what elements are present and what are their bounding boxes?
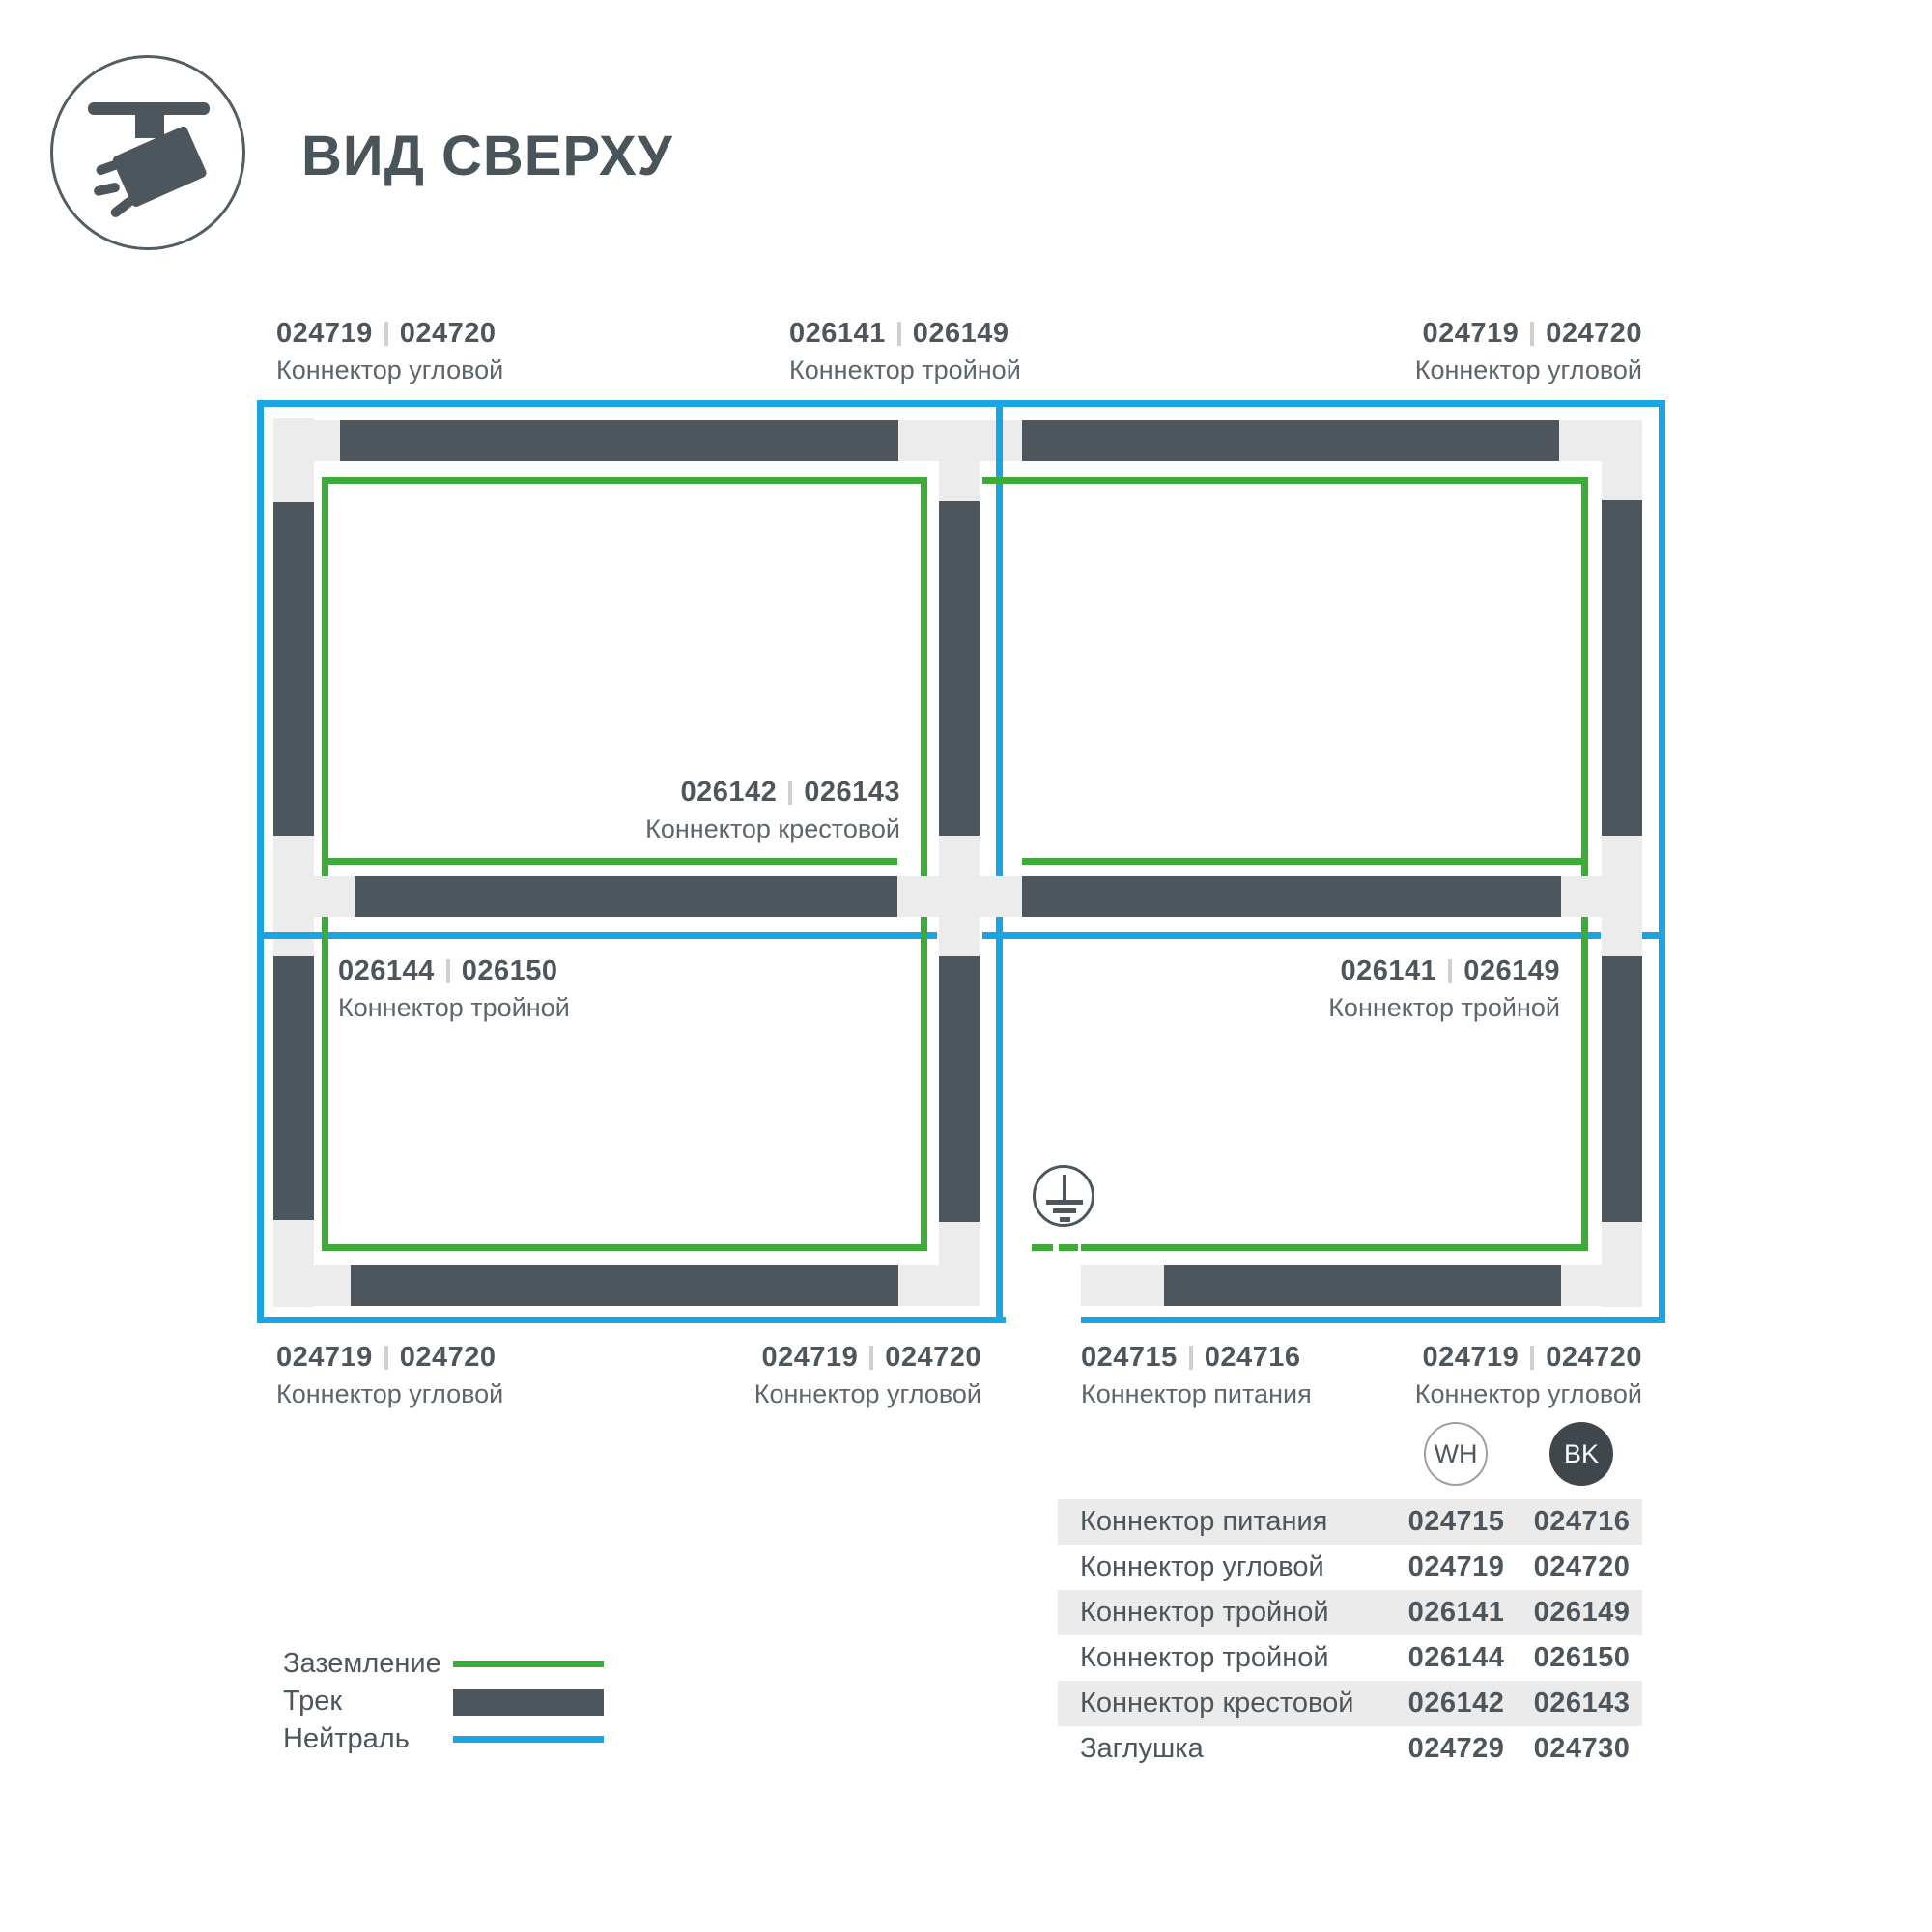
ground-line-middle-horizontal <box>322 858 897 865</box>
ground-dash <box>1059 1244 1078 1251</box>
legend-label: Трек <box>283 1686 453 1718</box>
code-divider <box>788 781 792 805</box>
label-corner-bottom-middle: 024719024720 Коннектор угловой <box>750 1343 981 1407</box>
code-divider <box>384 322 388 346</box>
part-name: Коннектор тройной <box>338 994 570 1021</box>
neutral-line-middle-horizontal <box>1642 932 1665 939</box>
label-cross-center: 026142026143 Коннектор крестовой <box>618 778 900 842</box>
table-row: Коннектор угловой 024719 024720 <box>1058 1545 1642 1590</box>
ground-line-right <box>1581 917 1588 1251</box>
page: ВИД СВЕРХУ 024 <box>0 0 1932 1932</box>
neutral-line-middle-vertical <box>996 400 1003 876</box>
part-name: Коннектор угловой <box>750 1380 981 1407</box>
row-code-wh: 026142 <box>1391 1688 1521 1719</box>
part-code-bk: 024720 <box>400 1343 497 1372</box>
ground-line-middle-horizontal <box>1022 858 1588 865</box>
part-code-bk: 026149 <box>1463 956 1560 985</box>
label-corner-bottom-right: 024719024720 Коннектор угловой <box>1410 1343 1642 1407</box>
part-code-wh: 026144 <box>338 956 435 985</box>
table-row: Коннектор питания 024715 024716 <box>1058 1499 1642 1545</box>
row-code-bk: 026143 <box>1521 1688 1642 1719</box>
part-code-wh: 024719 <box>276 1343 373 1372</box>
track-segment <box>1022 876 1561 917</box>
ground-line-bottom-left <box>322 1244 927 1251</box>
row-name: Заглушка <box>1058 1733 1391 1765</box>
page-title: ВИД СВЕРХУ <box>301 124 673 188</box>
part-name: Коннектор тройной <box>1315 994 1560 1021</box>
code-divider <box>1448 959 1452 983</box>
row-code-bk: 024720 <box>1521 1551 1642 1583</box>
row-code-wh: 024729 <box>1391 1733 1521 1765</box>
neutral-line-right <box>1659 400 1665 1323</box>
part-code-bk: 024720 <box>1546 1343 1642 1372</box>
ground-line-middle <box>921 477 927 876</box>
legend-item-ground: Заземление <box>283 1645 604 1683</box>
ground-line-top <box>982 477 1588 484</box>
track-spotlight-icon-art <box>53 58 242 247</box>
neutral-line-swatch <box>453 1736 604 1743</box>
parts-table: Коннектор питания 024715 024716 Коннекто… <box>1058 1499 1642 1772</box>
part-code-wh: 026142 <box>680 778 777 807</box>
row-code-bk: 024730 <box>1521 1733 1642 1765</box>
track-segment <box>939 956 980 1222</box>
earth-symbol <box>1033 1165 1094 1227</box>
ground-line-right <box>1581 477 1588 876</box>
part-code-bk: 026149 <box>913 319 1009 348</box>
bk-label: BK <box>1564 1439 1599 1469</box>
label-corner-bottom-left: 024719024720 Коннектор угловой <box>276 1343 503 1407</box>
legend: Заземление Трек Нейтраль <box>283 1645 604 1758</box>
ground-dash <box>1032 1244 1053 1251</box>
part-code-bk: 026150 <box>462 956 558 985</box>
part-code-wh: 026141 <box>789 319 886 348</box>
label-corner-top-left: 024719024720 Коннектор угловой <box>276 319 503 384</box>
row-code-wh: 026141 <box>1391 1597 1521 1629</box>
label-tee-middle-left: 026144026150 Коннектор тройной <box>338 956 570 1021</box>
label-tee-middle-right: 026141026149 Коннектор тройной <box>1315 956 1560 1021</box>
part-code-bk: 026143 <box>804 778 900 807</box>
legend-item-track: Трек <box>283 1683 604 1720</box>
ground-line-middle <box>921 917 927 1251</box>
table-row: Коннектор крестовой 026142 026143 <box>1058 1681 1642 1726</box>
neutral-line-left <box>257 400 264 1323</box>
part-code-wh: 024715 <box>1081 1343 1178 1372</box>
track-segment <box>1602 500 1642 836</box>
row-code-bk: 026149 <box>1521 1597 1642 1629</box>
legend-label: Нейтраль <box>283 1723 453 1755</box>
code-divider <box>897 322 901 346</box>
label-tee-top: 026141026149 Коннектор тройной <box>789 319 1021 384</box>
part-code-wh: 024719 <box>761 1343 858 1372</box>
part-name: Коннектор тройной <box>789 356 1021 384</box>
track-spotlight-icon <box>50 55 245 250</box>
legend-item-neutral: Нейтраль <box>283 1720 604 1758</box>
row-name: Коннектор угловой <box>1058 1551 1391 1583</box>
part-code-bk: 024720 <box>1546 319 1642 348</box>
neutral-line-middle-vertical <box>996 917 1003 1323</box>
code-divider <box>1189 1346 1193 1370</box>
part-code-bk: 024716 <box>1205 1343 1301 1372</box>
row-code-wh: 024715 <box>1391 1506 1521 1538</box>
track-segment <box>273 502 314 836</box>
track-bar-swatch <box>453 1689 604 1716</box>
part-code-wh: 024719 <box>1422 319 1519 348</box>
part-name: Коннектор угловой <box>1410 356 1642 384</box>
legend-label: Заземление <box>283 1648 453 1680</box>
code-divider <box>1530 322 1534 346</box>
track-segment <box>1602 956 1642 1222</box>
track-segment <box>939 501 980 836</box>
row-code-bk: 024716 <box>1521 1506 1642 1538</box>
part-name: Коннектор угловой <box>1410 1380 1642 1407</box>
part-code-bk: 024720 <box>885 1343 981 1372</box>
code-divider <box>446 959 450 983</box>
track-segment <box>340 420 898 461</box>
table-row: Коннектор тройной 026141 026149 <box>1058 1590 1642 1635</box>
row-code-wh: 024719 <box>1391 1551 1521 1583</box>
neutral-line-top <box>257 400 1665 407</box>
neutral-line-bottom-left <box>257 1317 1006 1323</box>
row-name: Коннектор тройной <box>1058 1642 1391 1674</box>
neutral-line-bottom-right <box>1081 1317 1665 1323</box>
label-corner-top-right: 024719024720 Коннектор угловой <box>1410 319 1642 384</box>
wh-label: WH <box>1435 1439 1478 1469</box>
row-name: Коннектор тройной <box>1058 1597 1391 1629</box>
part-code-wh: 026141 <box>1340 956 1436 985</box>
code-divider <box>384 1346 388 1370</box>
part-name: Коннектор крестовой <box>618 815 900 842</box>
row-code-wh: 026144 <box>1391 1642 1521 1674</box>
part-name: Коннектор угловой <box>276 1380 503 1407</box>
track-segment <box>1022 420 1559 461</box>
track-segment <box>273 956 314 1220</box>
code-divider <box>1530 1346 1534 1370</box>
part-name: Коннектор питания <box>1081 1380 1312 1407</box>
part-code-wh: 024719 <box>276 319 373 348</box>
track-segment <box>1164 1265 1561 1306</box>
ground-line-bottom-right <box>1081 1244 1588 1251</box>
code-divider <box>869 1346 873 1370</box>
ground-line-left <box>322 477 328 876</box>
row-name: Коннектор крестовой <box>1058 1688 1391 1719</box>
row-name: Коннектор питания <box>1058 1506 1391 1538</box>
part-code-bk: 024720 <box>400 319 497 348</box>
part-code-wh: 024719 <box>1422 1343 1519 1372</box>
part-name: Коннектор угловой <box>276 356 503 384</box>
track-segment <box>355 876 897 917</box>
table-row: Заглушка 024729 024730 <box>1058 1726 1642 1772</box>
track-segment <box>351 1265 898 1306</box>
neutral-line-middle-horizontal <box>257 932 937 939</box>
column-header-wh-badge: WH <box>1424 1422 1488 1486</box>
row-code-bk: 026150 <box>1521 1642 1642 1674</box>
ground-line-top <box>322 477 927 484</box>
ground-line-swatch <box>453 1661 604 1667</box>
table-row: Коннектор тройной 026144 026150 <box>1058 1635 1642 1681</box>
ground-line-left <box>322 917 328 1251</box>
neutral-line-middle-horizontal <box>982 932 1601 939</box>
label-power-connector: 024715024716 Коннектор питания <box>1081 1343 1312 1407</box>
column-header-bk-badge: BK <box>1549 1422 1613 1486</box>
